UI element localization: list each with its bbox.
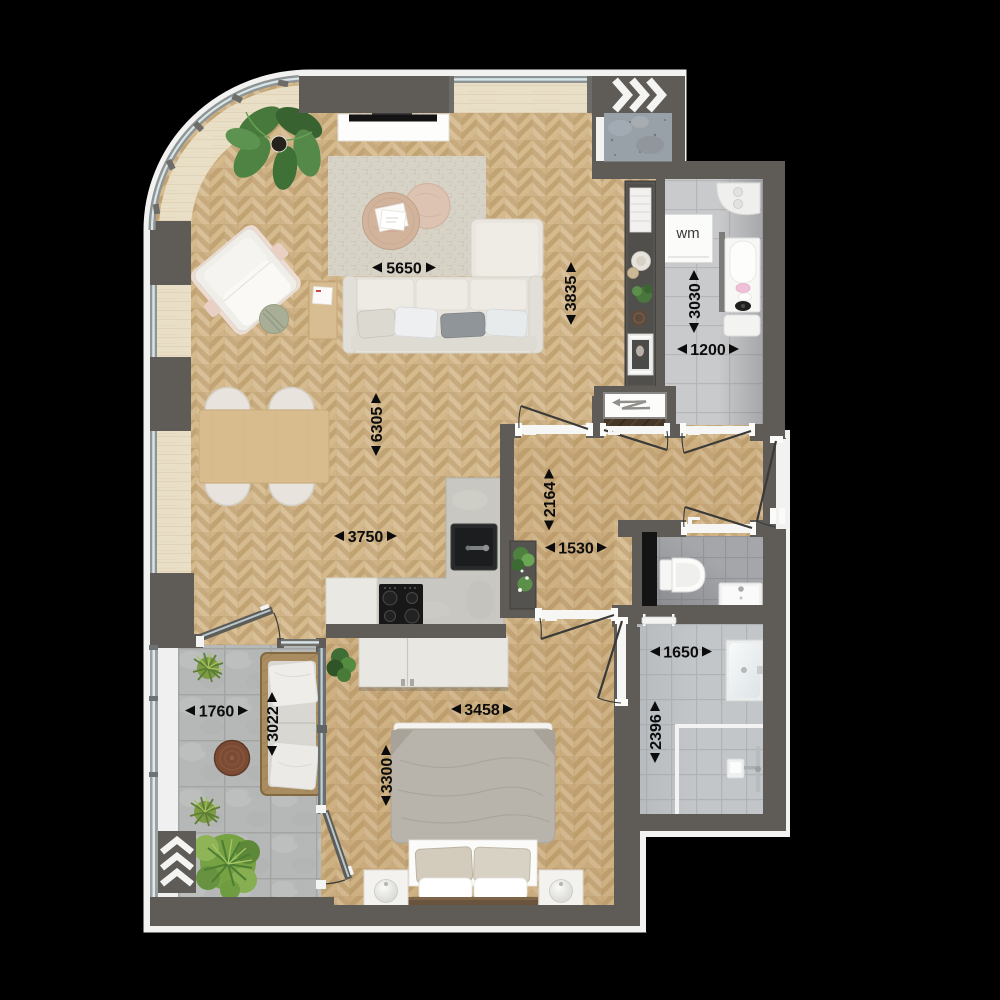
svg-text:3750: 3750 [348,529,384,546]
svg-text:1200: 1200 [690,342,726,359]
svg-text:3300: 3300 [379,758,396,794]
svg-text:1530: 1530 [558,541,594,558]
svg-text:2396: 2396 [648,714,665,750]
svg-text:3030: 3030 [687,283,704,319]
svg-text:1650: 1650 [663,645,699,662]
svg-text:5650: 5650 [386,261,422,278]
svg-text:1760: 1760 [199,704,235,721]
svg-text:6305: 6305 [369,407,386,443]
svg-text:3022: 3022 [265,706,282,742]
svg-text:3835: 3835 [563,276,580,312]
svg-text:2164: 2164 [542,482,559,518]
svg-text:wm: wm [675,225,699,242]
svg-text:3458: 3458 [464,702,500,719]
